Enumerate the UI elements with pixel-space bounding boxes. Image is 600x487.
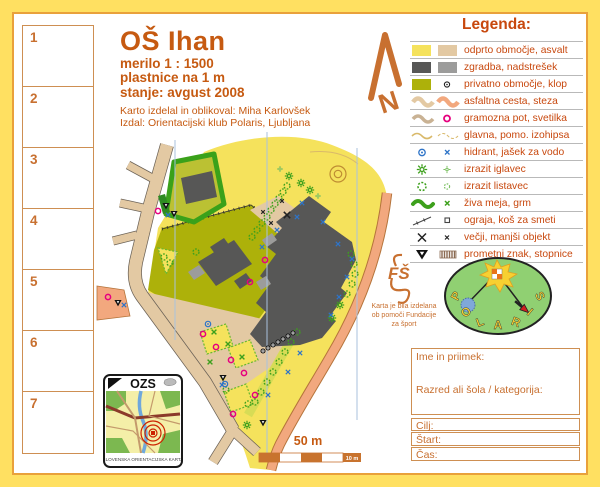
title-block: OŠ Ihan merilo 1 : 1500 plastnice na 1 m… [120,26,310,129]
legend-label: glavna, pomo. izohipsa [464,128,569,143]
funding-line: ob pomoči Fundacije [372,312,437,319]
open-area-asphalt-icon [410,43,464,58]
control-box: 2 [23,87,93,148]
control-box: 6 [23,331,93,392]
name-label: Ime in priimek: [416,351,484,363]
conifer-tree-icon [410,162,464,177]
control-box: 1 [23,26,93,87]
north-arrow-icon: N [364,32,408,116]
deciduous-tree-icon [410,179,464,194]
legend-label: odprto območje, asvalt [464,43,568,58]
legend-row: asfaltna cesta, steza [410,92,583,109]
legend-label: večji, manjši objekt [464,230,550,245]
legend-row: večji, manjši objekt [410,228,583,245]
building-canopy-icon [410,60,464,75]
contour-line: plastnice na 1 m [120,71,310,85]
control-number: 2 [23,87,93,106]
entry-form-name-box: Ime in priimek: Razred ali šola / katego… [411,348,580,415]
funding-note: FŠ Karta je bila izdelana ob pomoči Fund… [366,252,442,330]
legend-row: živa meja, grm [410,194,583,211]
club-letter: A [494,318,503,332]
legend-label: živa meja, grm [464,196,531,211]
hedge-bush-icon [410,196,464,211]
legend-row: gramozna pot, svetilka [410,109,583,126]
time-label: Čas: [416,449,438,461]
credit-publisher: Izdal: Orientacijski klub Polaris, Ljubl… [120,117,310,129]
legend-label: privatno območje, klop [464,77,567,92]
control-number: 1 [23,26,93,45]
scale-line: merilo 1 : 1500 [120,57,310,71]
legend-row: izrazit listavec [410,177,583,194]
legend-row: privatno območje, klop [410,75,583,92]
legend-panel: Legenda: odprto območje, asvalt zgradba,… [410,12,583,263]
legend-row: hidrant, jašek za vodo [410,143,583,160]
contour-lines-icon [410,128,464,143]
north-label: N [375,85,403,116]
funding-line: za šport [392,321,417,328]
legend-label: gramozna pot, svetilka [464,111,567,126]
legend-row: zgradba, nadstrešek [410,58,583,75]
time-row: Čas: [411,447,580,461]
control-box: 4 [23,209,93,270]
ozs-caption: SLOVENSKA ORIENTACIJSKA KARTA [105,457,181,462]
finish-row: Cilj: [411,418,580,431]
ozs-title: OZS [130,377,156,391]
legend-label: izrazit iglavec [464,162,526,177]
start-label: Štart: [416,434,441,446]
legend-label: hidrant, jašek za vodo [464,145,564,160]
legend-label: zgradba, nadstrešek [464,60,557,75]
control-box: 5 [23,270,93,331]
class-label: Razred ali šola / kategorija: [416,384,543,396]
map-title: OŠ Ihan [120,26,310,57]
control-number: 3 [23,148,93,167]
hydrant-manhole-icon [410,145,464,160]
scale-bar-label: 50 m [268,434,348,448]
legend-label: asfaltna cesta, steza [464,94,558,109]
control-number: 4 [23,209,93,228]
finish-label: Cilj: [416,420,434,432]
private-area-bench-icon [410,77,464,92]
map-sheet: 1 2 3 4 5 6 7 OŠ Ihan merilo 1 : 1500 pl… [0,0,600,487]
fence-bin-icon [410,213,464,228]
status-line: stanje: avgust 2008 [120,86,310,100]
scale-bar: 10 m [258,452,362,464]
large-small-object-icon [410,230,464,245]
control-box: 7 [23,392,93,453]
control-number: 7 [23,392,93,411]
control-description-column: 1 2 3 4 5 6 7 [22,25,94,454]
legend-title: Legenda: [410,16,583,34]
control-number: 6 [23,331,93,350]
funding-logo-text: FŠ [388,264,410,283]
legend-row: odprto območje, asvalt [410,41,583,58]
legend-row: izrazit iglavec [410,160,583,177]
ozs-card: OZS SLOVENSKA ORIENTACIJS [103,374,183,468]
start-row: Štart: [411,432,580,446]
asphalt-road-path-icon [410,94,464,109]
legend-row: ograja, koš za smeti [410,211,583,228]
control-number: 5 [23,270,93,289]
funding-line: Karta je bila izdelana [372,303,437,310]
gravel-path-lamp-icon [410,111,464,126]
legend-row: glavna, pomo. izohipsa [410,126,583,143]
legend-label: izrazit listavec [464,179,528,194]
polaris-club-logo: P O L A R I S [442,256,554,336]
credit-author: Karto izdelal in oblikoval: Miha Karlovš… [120,105,310,117]
legend-label: ograja, koš za smeti [464,213,556,228]
control-box: 3 [23,148,93,209]
scale-segment-label: 10 m [346,456,359,462]
